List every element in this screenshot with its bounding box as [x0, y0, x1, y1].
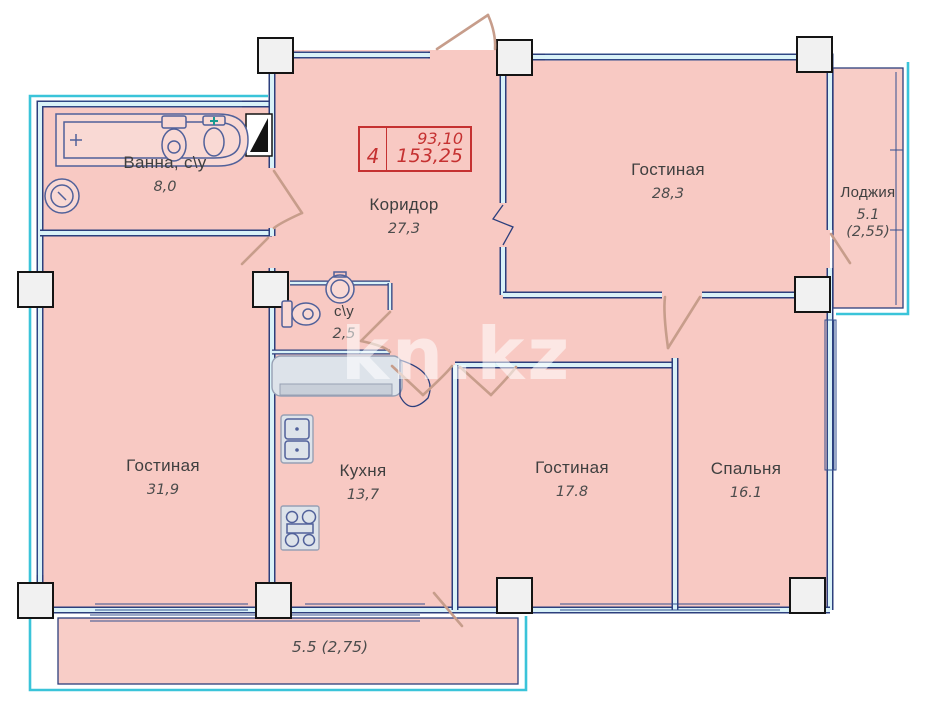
room-name: Гостиная — [126, 456, 200, 476]
room-label-living-3: Гостиная 17.8 — [535, 458, 609, 500]
room-name: Спальня — [711, 459, 781, 479]
room-area: 13,7 — [340, 487, 387, 503]
room-name: Кухня — [340, 461, 387, 481]
balcony-area: 5.5 (2,75) — [292, 638, 368, 656]
room-label-living-2: Гостиная 31,9 — [126, 456, 200, 498]
room-name: Лоджия — [841, 184, 896, 201]
room-label-kitchen: Кухня 13,7 — [340, 461, 387, 503]
room-area: 17.8 — [535, 484, 609, 500]
room-name: Гостиная — [535, 458, 609, 478]
room-name: Ванна, с\у — [123, 153, 206, 173]
apartment-stamp: 4 93,10 153,25 — [358, 126, 472, 172]
room-label-bathroom: Ванна, с\у 8,0 — [123, 153, 206, 195]
balcony-label: 5.5 (2,75) — [292, 638, 368, 656]
room-area: 16.1 — [711, 485, 781, 501]
room-name: Гостиная — [631, 160, 705, 180]
room-label-bedroom: Спальня 16.1 — [711, 459, 781, 501]
room-area: 31,9 — [126, 482, 200, 498]
room-area: 27,3 — [369, 221, 438, 237]
room-area: 8,0 — [123, 179, 206, 195]
room-name: Коридор — [369, 195, 438, 215]
stamp-total-area: 153,25 — [397, 147, 463, 167]
room-label-loggia: Лоджия 5.1 (2,55) — [841, 184, 896, 240]
room-area: 5.1 — [841, 207, 896, 223]
watermark: kn.kz — [341, 312, 572, 396]
room-label-corridor: Коридор 27,3 — [369, 195, 438, 237]
room-label-living-1: Гостиная 28,3 — [631, 160, 705, 202]
room-area: 28,3 — [631, 186, 705, 202]
room-area-2: (2,55) — [841, 224, 896, 240]
floorplan: Ванна, с\у 8,0 Коридор 27,3 Гостиная 28,… — [0, 0, 937, 716]
stamp-rooms-count: 4 — [360, 128, 387, 170]
